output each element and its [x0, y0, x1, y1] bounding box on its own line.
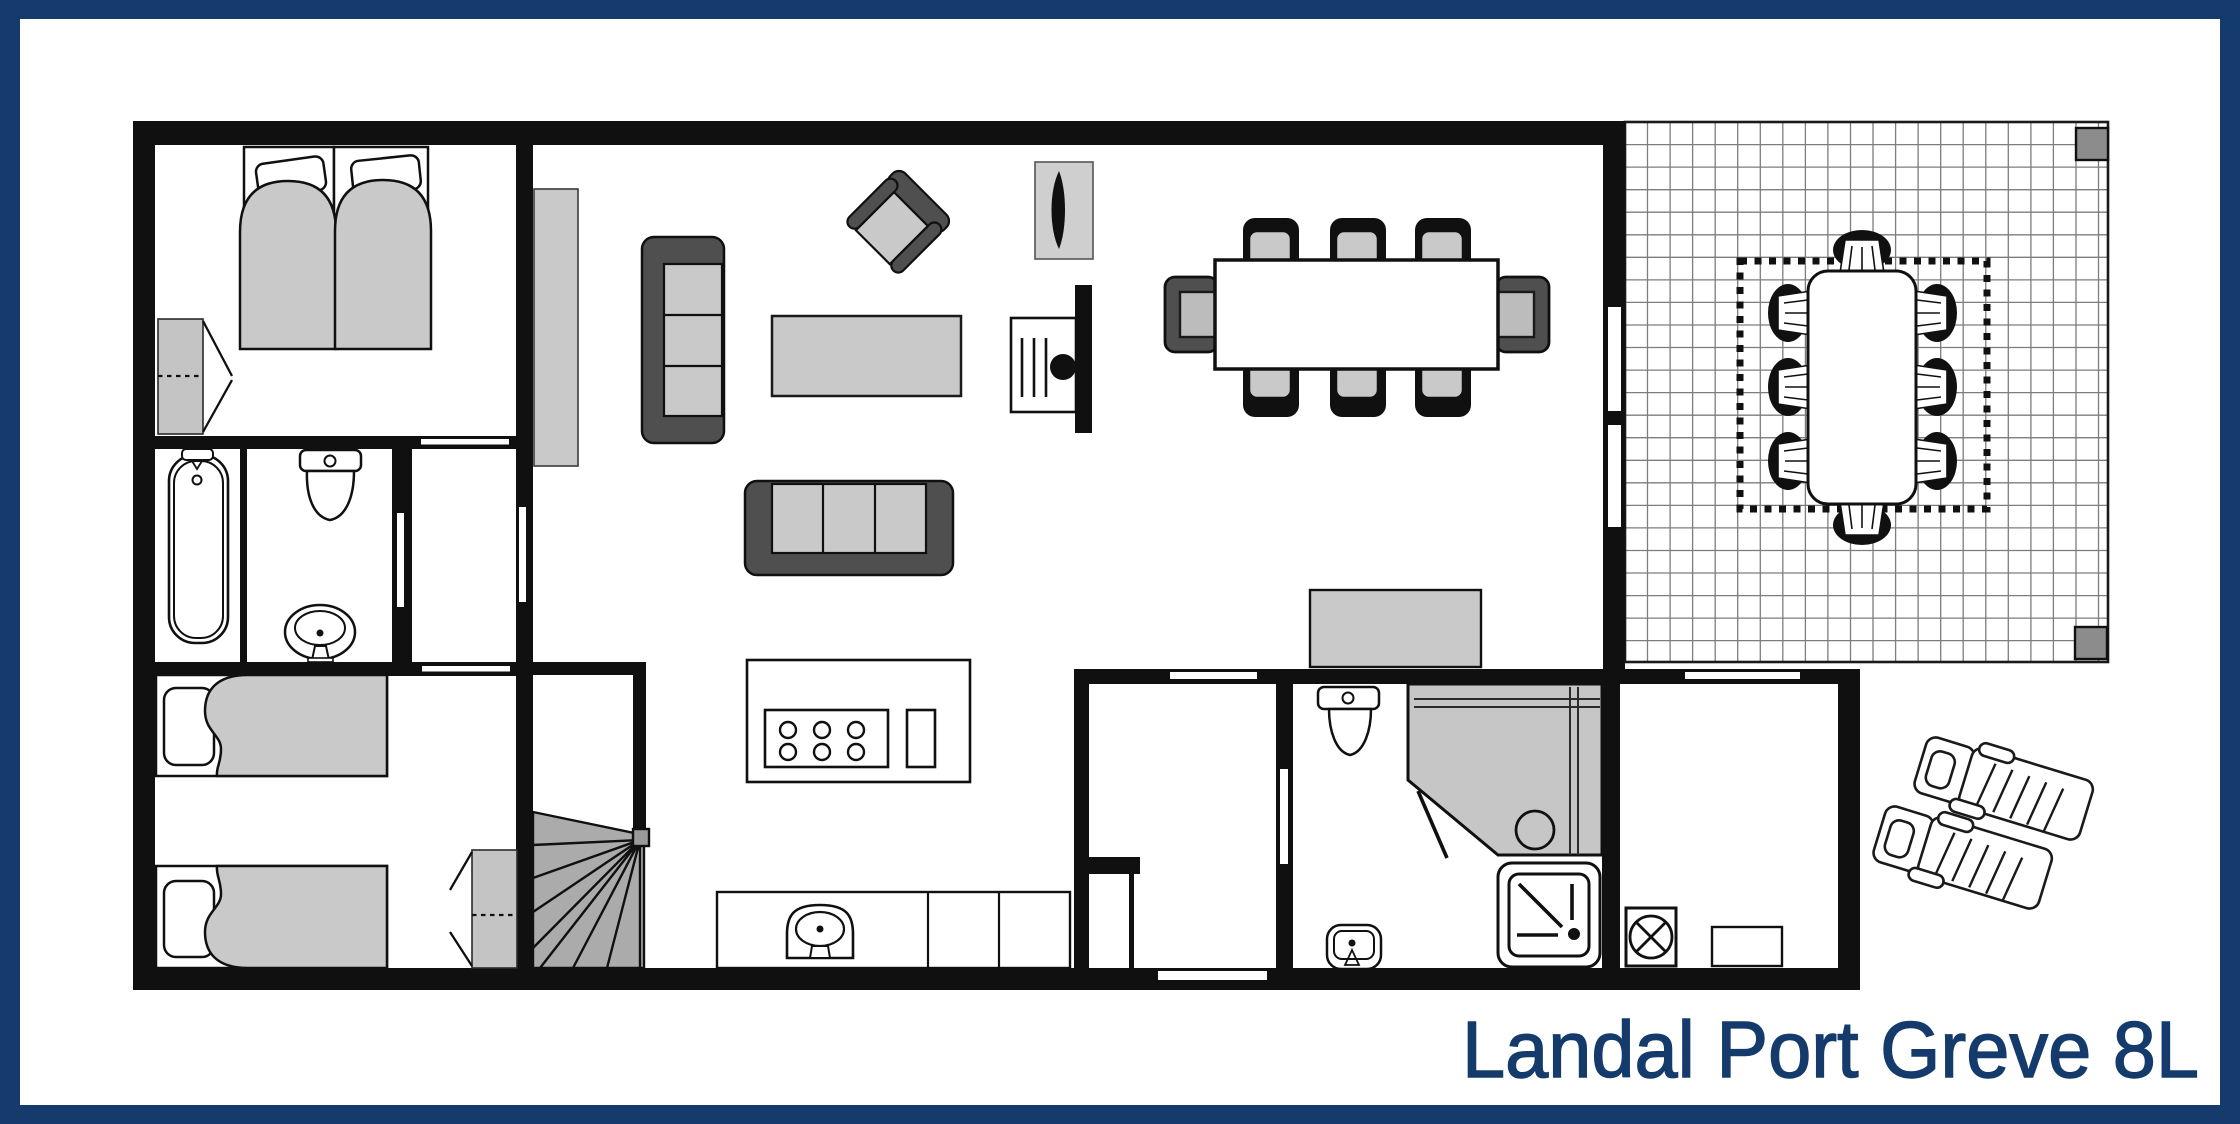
svg-text:Landal Port Greve 8L: Landal Port Greve 8L — [1462, 1005, 2199, 1094]
